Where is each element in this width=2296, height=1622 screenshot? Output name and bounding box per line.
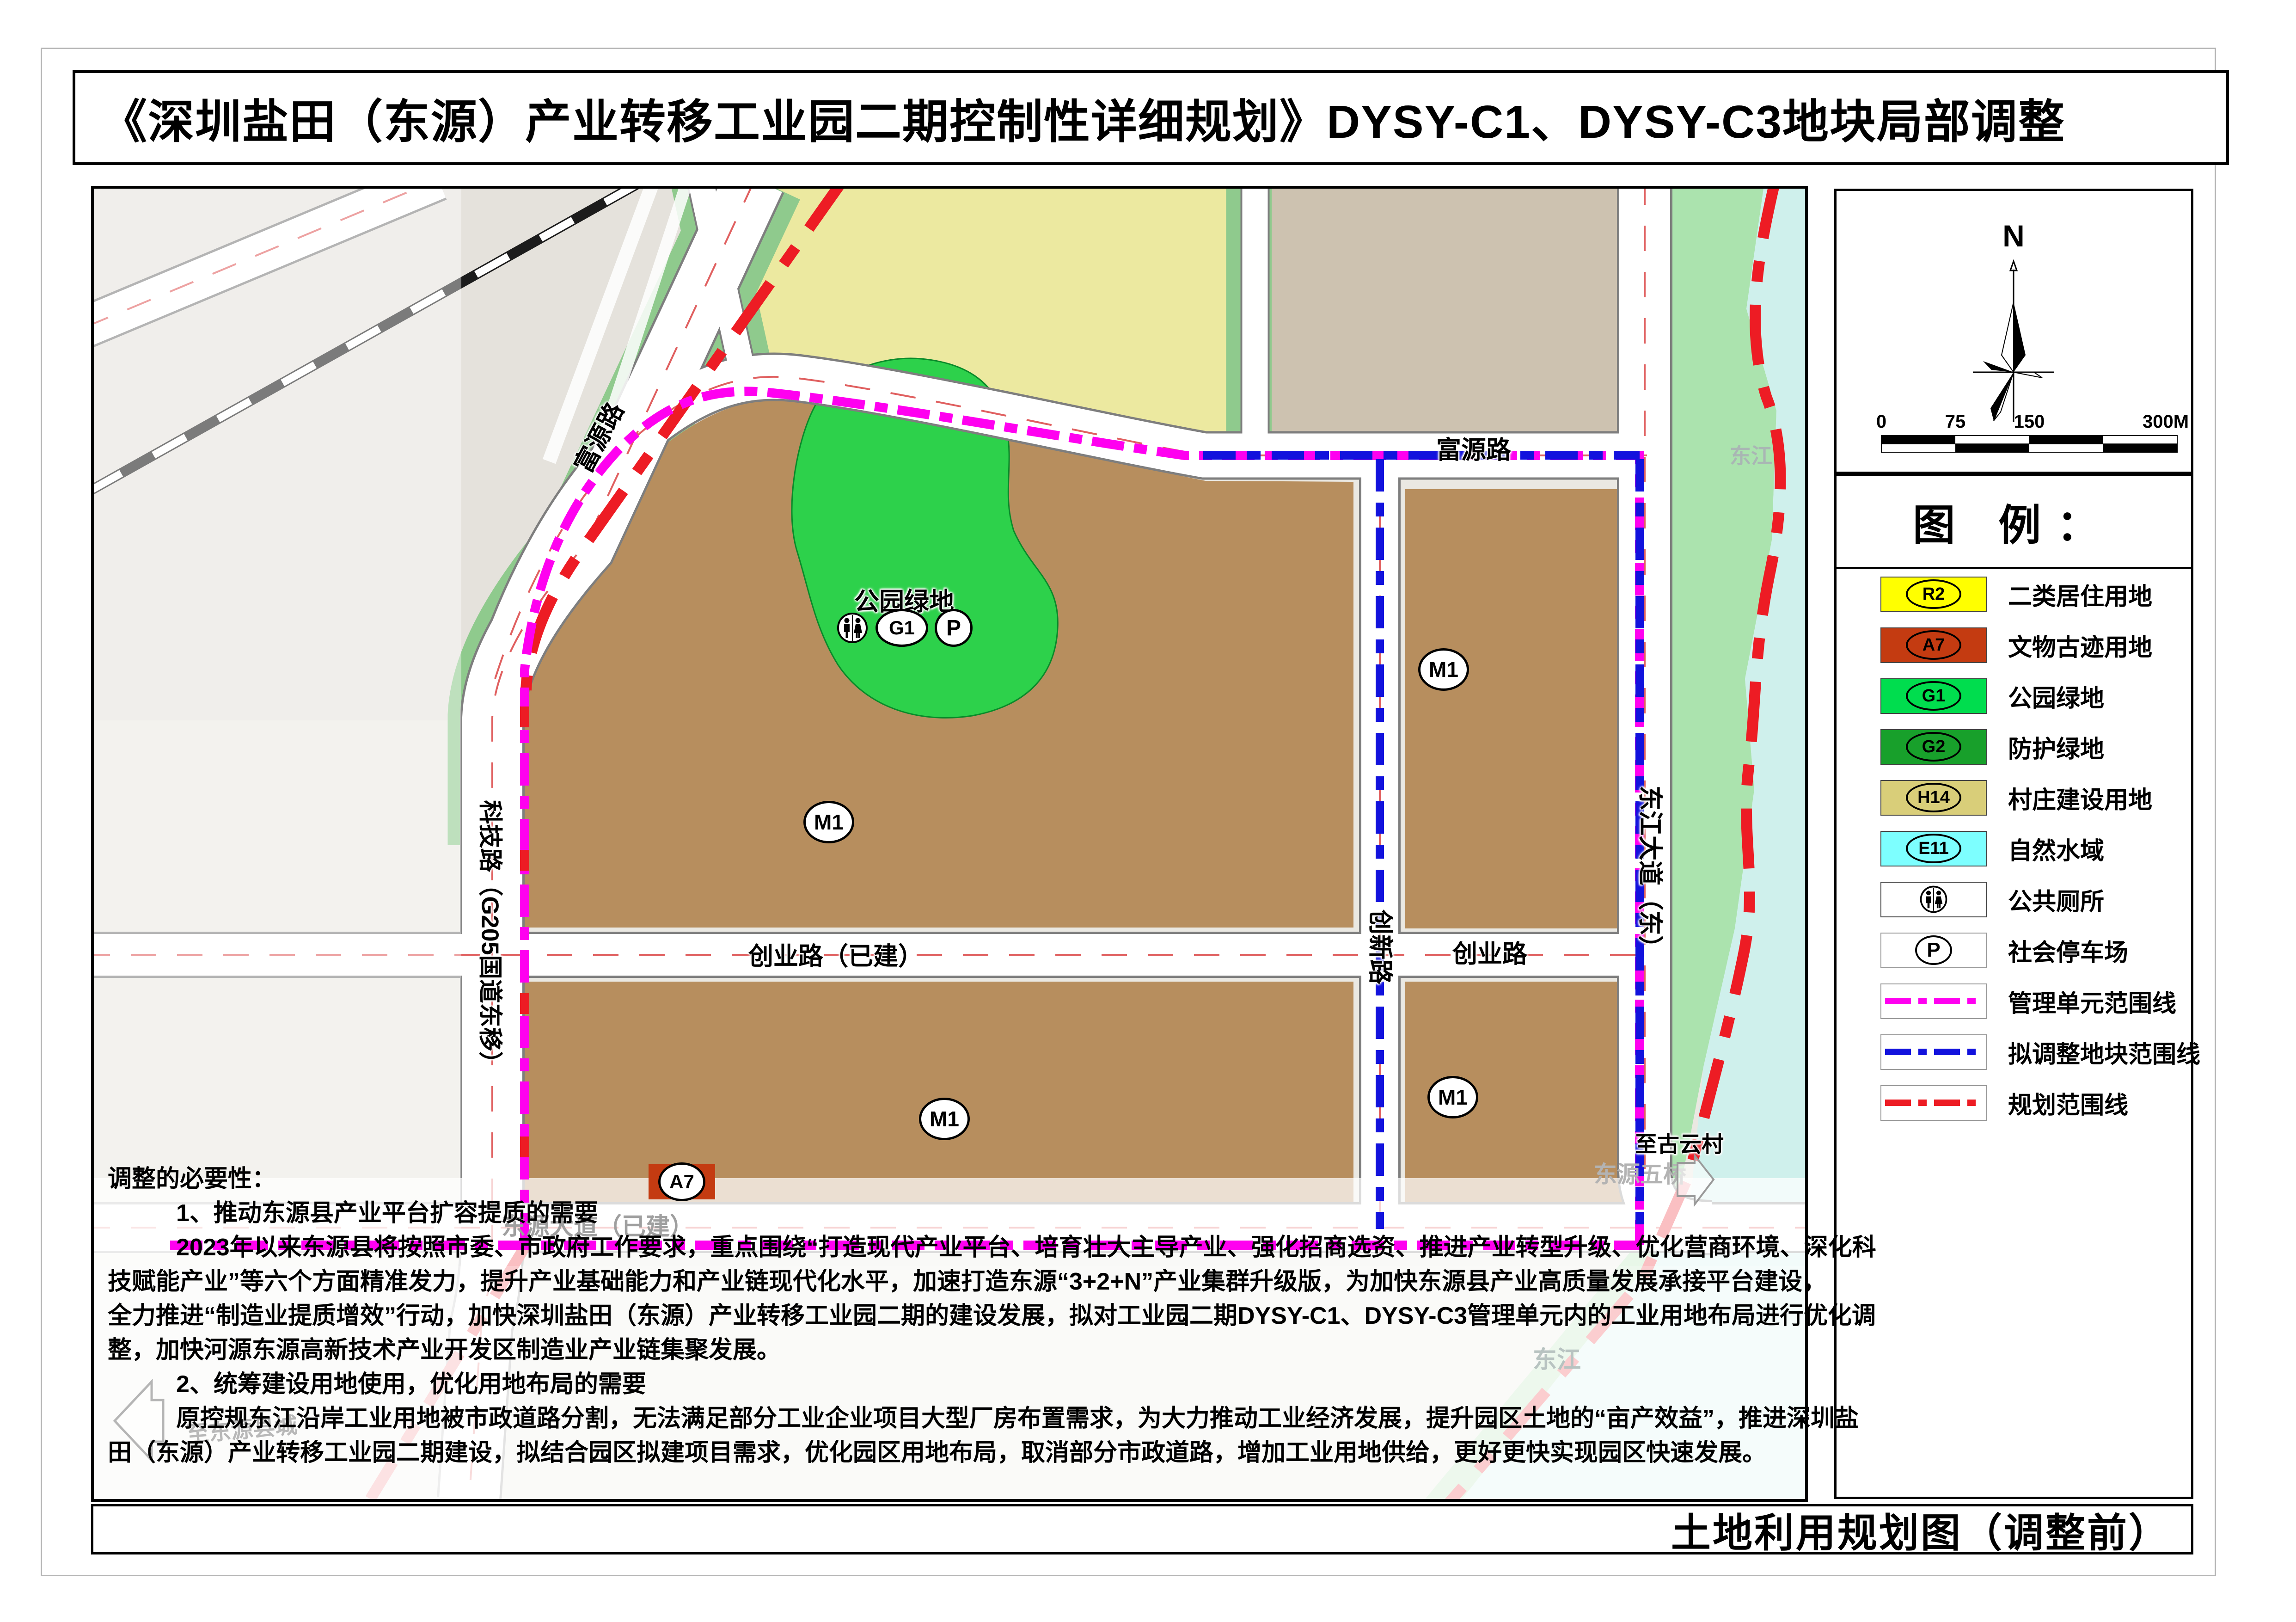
legend-row-e11: E11 自然水域 <box>1837 823 2191 874</box>
water-label-dongjiang-top: 东江 <box>1730 439 1772 470</box>
legend-code: G1 <box>1906 681 1961 711</box>
page-title: 《深圳盐田（东源）产业转移工业园二期控制性详细规划》DYSY-C1、DYSY-C… <box>101 84 2065 151</box>
notes-subhead-1: 1、推动东源县产业平台扩容提质的需要 <box>108 1196 1800 1230</box>
svg-text:0: 0 <box>1876 412 1886 432</box>
g1-badge: G1 <box>876 609 928 647</box>
parking-badge: P <box>935 609 973 647</box>
road-label-fuyuan-diagonal: 富源路 <box>563 395 631 478</box>
legend-code: E11 <box>1906 834 1961 863</box>
legend-label: 自然水域 <box>2008 831 2104 866</box>
notes-body: 全力推进“制造业提质增效”行动，加快深圳盐田（东源）产业转移工业园二期的建设发展… <box>108 1299 1800 1333</box>
road-label-chuangxin: 创新路 <box>1365 909 1401 984</box>
caption-bar: 土地利用规划图（调整前） <box>91 1504 2193 1554</box>
legend-label: 公共厕所 <box>2008 882 2104 917</box>
svg-text:75: 75 <box>1945 412 1966 432</box>
notes-body: 技赋能产业”等六个方面精准发力，提升产业基础能力和产业链现代化水平，加速打造东源… <box>108 1265 1800 1299</box>
m1-badge: M1 <box>1418 648 1469 691</box>
magenta-line-sample <box>1885 996 1982 1006</box>
legend-label: 管理单元范围线 <box>2008 984 2176 1019</box>
legend-label: 防护绿地 <box>2008 730 2104 764</box>
legend-code: H14 <box>1906 783 1961 812</box>
legend-row-a7: A7 文物古迹用地 <box>1837 620 2191 670</box>
legend-label: 文物古迹用地 <box>2008 628 2152 663</box>
scalebar-labels: 0 75 150 300M <box>1876 412 2189 432</box>
svg-text:150: 150 <box>2014 412 2045 432</box>
legend-label: 规划范围线 <box>2008 1086 2128 1120</box>
legend-row-g2: G2 防护绿地 <box>1837 721 2191 772</box>
road-label-keji: 科技路（G205国道东移） <box>475 800 510 1075</box>
notes-body: 田（东源）产业转移工业园二期建设，拟结合园区拟建项目需求，优化园区用地布局，取消… <box>108 1436 1800 1470</box>
legend-row-planning-line: 规划范围线 <box>1837 1077 2191 1128</box>
legend-row-r2: R2 二类居住用地 <box>1837 569 2191 620</box>
red-line-sample <box>1885 1098 1982 1107</box>
notes-subhead-2: 2、统筹建设用地使用，优化用地布局的需要 <box>108 1367 1800 1401</box>
title-box: 《深圳盐田（东源）产业转移工业园二期控制性详细规划》DYSY-C1、DYSY-C… <box>73 70 2229 165</box>
legend-code: R2 <box>1906 579 1961 609</box>
m1-badge: M1 <box>919 1098 970 1140</box>
notes-heading: 调整的必要性： <box>108 1162 1800 1196</box>
compass-star <box>1983 302 2042 421</box>
plan-sheet: 《深圳盐田（东源）产业转移工业园二期控制性详细规划》DYSY-C1、DYSY-C… <box>0 0 2296 1622</box>
legend-row-h14: H14 村庄建设用地 <box>1837 772 2191 823</box>
road-label-dongjiang-avenue: 东江大道（东） <box>1635 786 1671 960</box>
notes-body: 整，加快河源东源高新技术产业开发区制造业产业链集聚发展。 <box>108 1333 1800 1367</box>
road-label-fuyuan-horizontal: 富源路 <box>1436 430 1511 466</box>
svg-text:300M: 300M <box>2143 412 2189 432</box>
parking-icon: P <box>1915 935 1952 965</box>
legend-row-toilet: 公共厕所 <box>1837 874 2191 925</box>
road-label-chuangye: 创业路 <box>1452 934 1527 970</box>
north-arrowhead <box>2010 261 2017 270</box>
legend-row-g1: G1 公园绿地 <box>1837 670 2191 721</box>
blue-line-sample <box>1885 1047 1982 1057</box>
scalebar <box>1881 436 2177 452</box>
legend: 图 例： R2 二类居住用地 A7 文物古迹用地 G1 公园绿地 G2 防护绿地… <box>1834 474 2193 1499</box>
legend-label: 拟调整地块范围线 <box>2008 1035 2200 1069</box>
legend-row-parking: P 社会停车场 <box>1837 925 2191 976</box>
north-arrow-scalebar: N 0 75 150 300M <box>1837 191 2191 472</box>
legend-code: A7 <box>1906 630 1961 660</box>
north-letter: N <box>2002 219 2025 253</box>
legend-code: G2 <box>1906 732 1961 762</box>
legend-label: 公园绿地 <box>2008 679 2104 713</box>
notes-body: 2023年以来东源县将按照市委、市政府工作要求，重点围绕“打造现代产业平台、培育… <box>108 1230 1800 1265</box>
legend-title: 图 例： <box>1837 476 2191 569</box>
legend-row-mgmt-line: 管理单元范围线 <box>1837 976 2191 1026</box>
toilet-icon <box>836 611 869 645</box>
legend-label: 村庄建设用地 <box>2008 780 2152 815</box>
legend-label: 二类居住用地 <box>2008 577 2152 612</box>
park-icons: G1 P <box>836 609 973 647</box>
legend-row-adjust-line: 拟调整地块范围线 <box>1837 1026 2191 1077</box>
road-label-chuangye-built: 创业路（已建） <box>748 936 923 972</box>
north-scale-panel: N 0 75 150 300M <box>1834 189 2193 474</box>
notes-block: 调整的必要性： 1、推动东源县产业平台扩容提质的需要 2023年以来东源县将按照… <box>108 1162 1800 1470</box>
map-caption: 土地利用规划图（调整前） <box>1671 1500 2170 1558</box>
m1-badge: M1 <box>803 801 854 843</box>
legend-label: 社会停车场 <box>2008 933 2128 968</box>
notes-body: 原控规东江沿岸工业用地被市政道路分割，无法满足部分工业企业项目大型厂房布置需求，… <box>108 1401 1800 1436</box>
toilet-icon <box>1918 884 1949 915</box>
land-use-map: 富源路 富源路 科技路（G205国道东移） 创新路 东江大道（东） 创业路（已建… <box>91 186 1808 1502</box>
m1-badge: M1 <box>1427 1076 1478 1118</box>
